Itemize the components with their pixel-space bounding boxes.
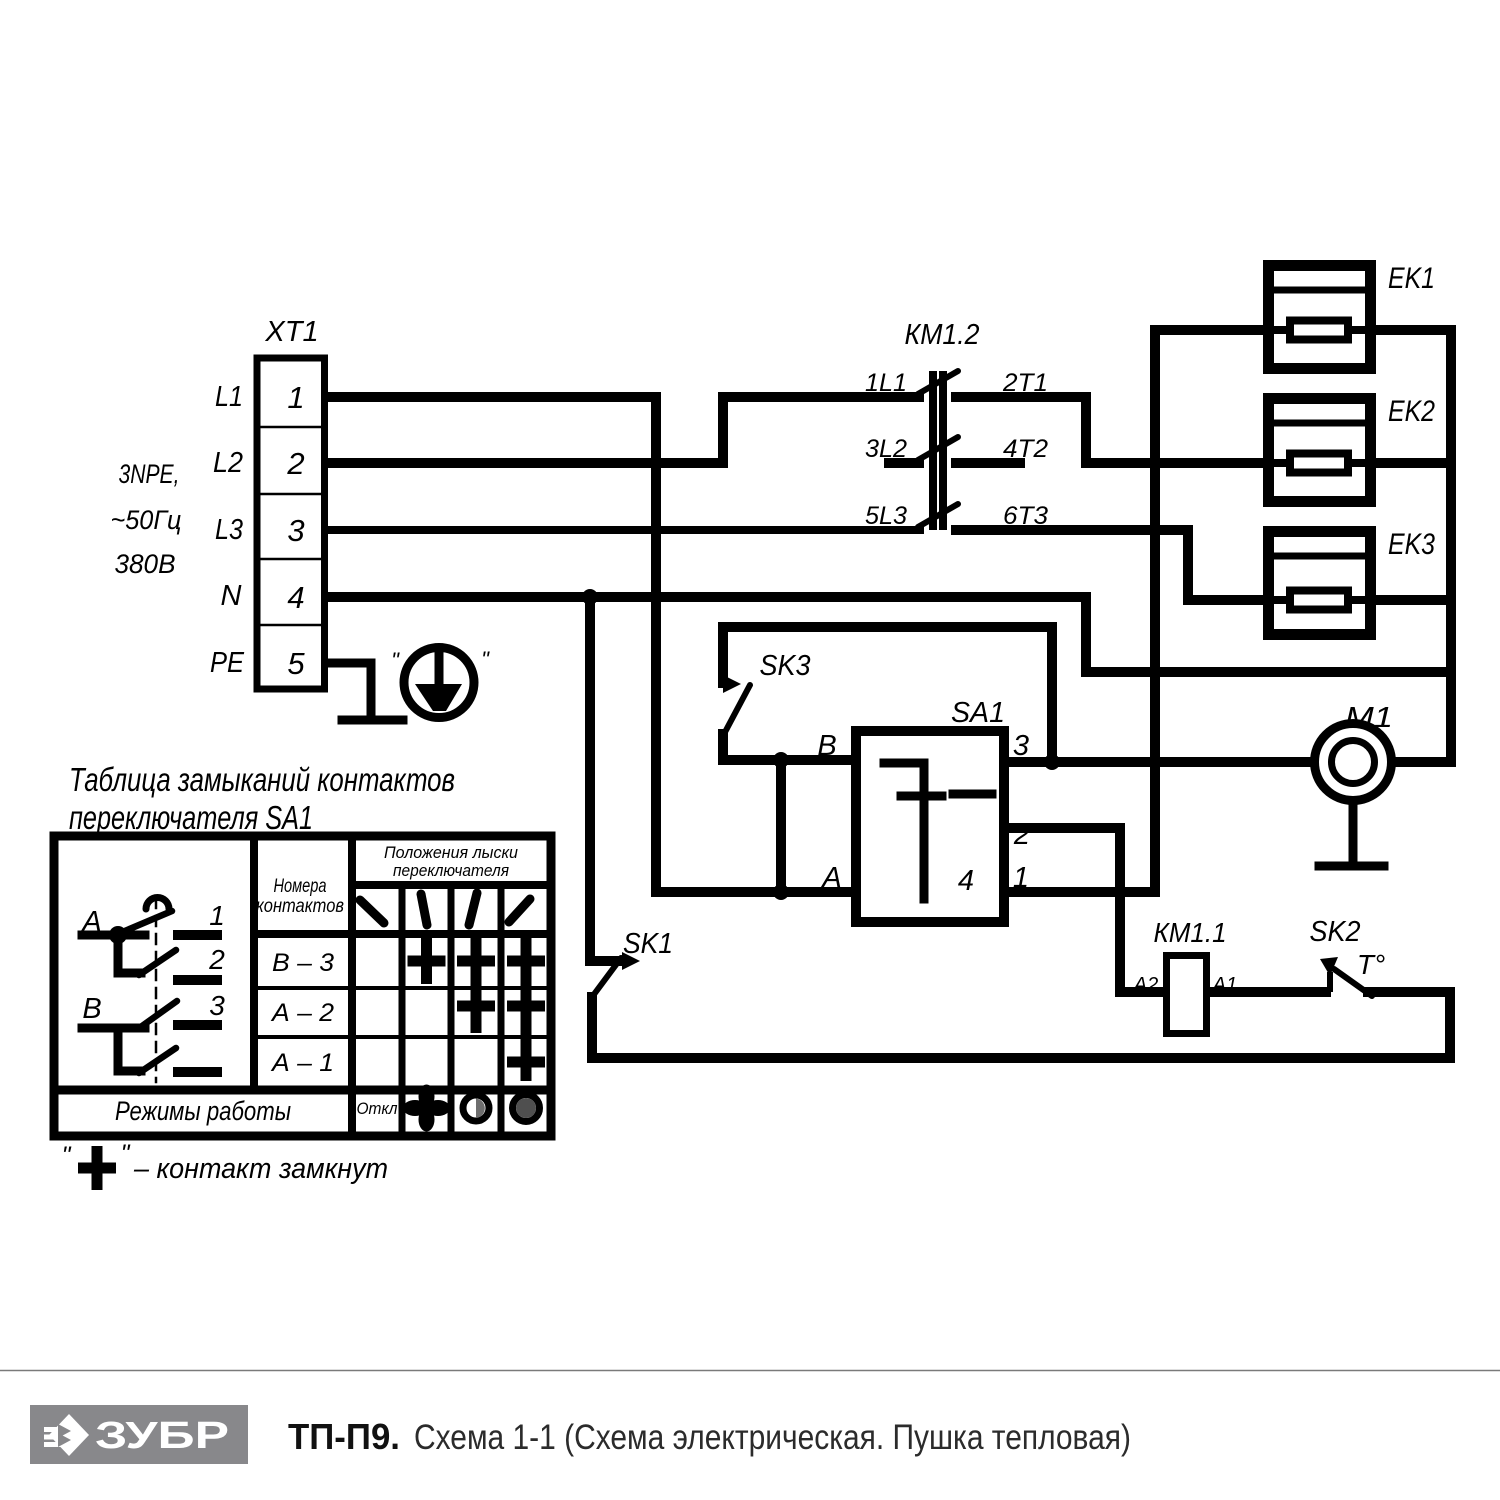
svg-text:": "	[121, 1140, 131, 1168]
svg-text:ТП-П9.: ТП-П9.	[288, 1416, 400, 1457]
svg-text:А2: А2	[1133, 974, 1158, 996]
svg-text:4: 4	[958, 865, 974, 897]
svg-text:Таблица замыканий контактов: Таблица замыканий контактов	[69, 761, 455, 798]
svg-text:А: А	[80, 906, 101, 938]
svg-text:А: А	[820, 862, 841, 894]
svg-text:L2: L2	[213, 447, 243, 479]
svg-text:~50Гц: ~50Гц	[111, 505, 182, 535]
svg-text:1: 1	[1013, 862, 1029, 894]
svg-text:Положения лыски: Положения лыски	[384, 843, 519, 862]
svg-text:1L1: 1L1	[865, 369, 907, 397]
svg-text:XT1: XT1	[264, 316, 318, 348]
svg-text:3NPE,: 3NPE,	[119, 459, 180, 489]
svg-text:А1: А1	[1212, 974, 1237, 996]
svg-text:ЗУБР: ЗУБР	[95, 1415, 229, 1457]
svg-text:В – 3: В – 3	[272, 949, 334, 977]
svg-text:EK2: EK2	[1388, 395, 1435, 428]
svg-text:Откл: Откл	[357, 1099, 398, 1118]
svg-text:2: 2	[1013, 819, 1030, 851]
svg-text:КМ1.1: КМ1.1	[1154, 917, 1227, 948]
svg-text:переключателя SA1: переключателя SA1	[69, 799, 313, 836]
svg-text:переключателя: переключателя	[393, 861, 509, 880]
svg-text:L3: L3	[215, 514, 243, 546]
svg-text:": "	[481, 647, 490, 672]
svg-text:SA1: SA1	[951, 697, 1005, 729]
svg-text:SK2: SK2	[1310, 916, 1361, 948]
svg-text:1: 1	[287, 380, 304, 415]
svg-text:4: 4	[287, 580, 304, 615]
svg-text:5L3: 5L3	[865, 502, 907, 530]
svg-text:3: 3	[209, 990, 225, 1021]
svg-text:2: 2	[286, 446, 304, 481]
svg-text:6T3: 6T3	[1003, 502, 1048, 530]
svg-text:EK1: EK1	[1388, 262, 1435, 295]
svg-text:3: 3	[287, 513, 304, 548]
svg-text:В: В	[82, 993, 101, 1025]
svg-text:Т°: Т°	[1357, 949, 1385, 980]
svg-text:5: 5	[287, 646, 305, 681]
svg-text:3L2: 3L2	[865, 435, 907, 463]
svg-text:Схема 1-1 (Схема электрическая: Схема 1-1 (Схема электрическая. Пушка те…	[414, 1418, 1131, 1457]
svg-text:EK3: EK3	[1388, 528, 1435, 561]
svg-text:N: N	[221, 580, 242, 612]
svg-text:3: 3	[1013, 730, 1029, 762]
svg-text:– контакт замкнут: – контакт замкнут	[133, 1153, 388, 1185]
svg-text:4T2: 4T2	[1003, 435, 1048, 463]
svg-text:PE: PE	[210, 647, 245, 679]
svg-text:": "	[391, 648, 400, 673]
svg-text:SK3: SK3	[760, 650, 811, 682]
svg-text:А – 1: А – 1	[270, 1049, 334, 1077]
svg-text:2T1: 2T1	[1002, 369, 1048, 397]
svg-text:380В: 380В	[115, 549, 176, 579]
svg-text:SK1: SK1	[623, 928, 673, 960]
svg-text:L1: L1	[215, 381, 243, 413]
svg-text:Номера: Номера	[274, 876, 327, 897]
svg-text:2: 2	[208, 944, 225, 975]
svg-text:Режимы работы: Режимы работы	[115, 1096, 291, 1126]
svg-text:М1: М1	[1345, 702, 1393, 734]
svg-text:контактов: контактов	[256, 896, 344, 917]
svg-text:А – 2: А – 2	[270, 999, 334, 1027]
svg-text:": "	[62, 1142, 72, 1170]
svg-text:В: В	[817, 730, 836, 762]
svg-text:1: 1	[209, 900, 225, 931]
svg-text:КМ1.2: КМ1.2	[905, 319, 980, 351]
